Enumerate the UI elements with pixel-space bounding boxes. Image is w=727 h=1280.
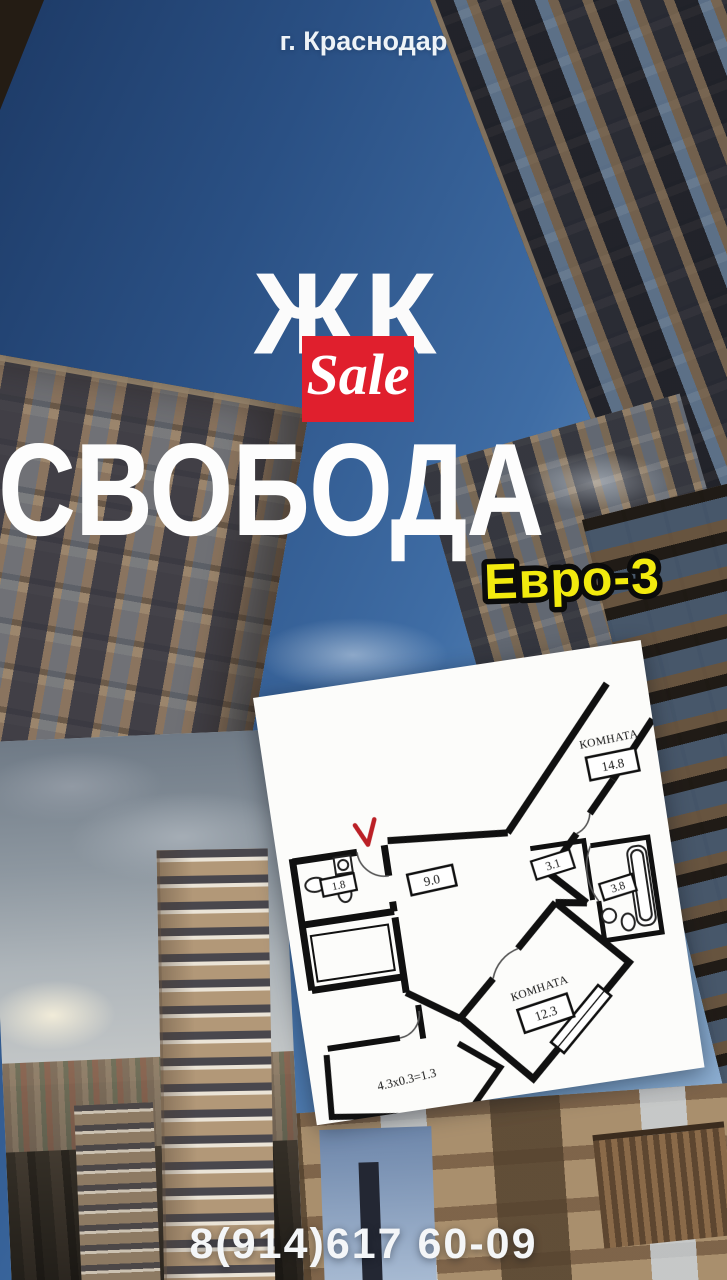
sale-badge: Sale — [302, 336, 414, 422]
phone-number: 8(914)617 60-09 — [0, 1220, 727, 1269]
washer-drum-icon — [337, 859, 348, 870]
unit-type-sticker: Евро-3 — [461, 536, 684, 624]
title-svoboda: СВОБОДА — [0, 424, 543, 556]
floorplan-sheet: КОМНАТА 14.8 КОМНАТА 12.3 9.0 — [253, 640, 705, 1125]
sink-icon — [601, 908, 617, 924]
sale-badge-label: Sale — [306, 346, 409, 412]
inset-tower-building — [156, 848, 275, 1280]
unit-type-label: Евро-3 — [483, 548, 660, 610]
floorplan-drawing: КОМНАТА 14.8 КОМНАТА 12.3 9.0 — [253, 640, 705, 1125]
story-ad: КОМНАТА 14.8 КОМНАТА 12.3 9.0 — [0, 0, 727, 1280]
city-label: г. Краснодар — [0, 26, 727, 57]
inset-city-photo — [0, 729, 304, 1280]
